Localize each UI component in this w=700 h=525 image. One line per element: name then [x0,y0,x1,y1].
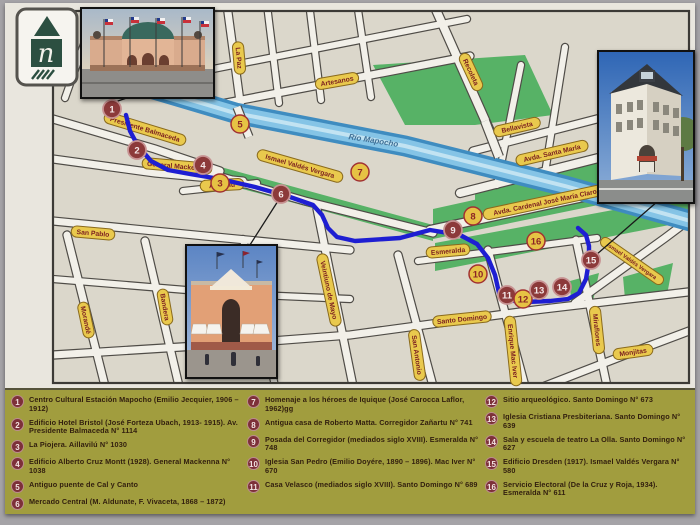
legend-item-text: Iglesia San Pedro (Emilio Doyére, 1890 –… [265,457,485,476]
map-marker-6: 6 [272,185,290,203]
municipality-sign-logo: n [15,7,79,87]
legend-item-number: 14 [485,435,498,448]
legend-item-13: 13Iglesia Cristiana Presbiteriana. Santo… [485,412,691,431]
legend-item-number: 11 [247,480,260,493]
map-marker-8: 8 [464,207,482,225]
legend-item-14: 14Sala y escuela de teatro La Olla. Sant… [485,435,691,454]
legend-column-1: 1Centro Cultural Estación Mapocho (Emili… [11,395,247,510]
marker-number: 15 [586,255,597,266]
legend-item-number: 2 [11,418,24,431]
marker-number: 6 [278,189,283,200]
marker-number: 3 [217,178,222,189]
legend-item-11: 11Casa Velasco (mediados siglo XVIII). S… [247,480,485,493]
legend-item-1: 1Centro Cultural Estación Mapocho (Emili… [11,395,247,414]
marker-number: 8 [470,211,475,222]
legend-item-number: 13 [485,412,498,425]
street-map: Río MapochoPresidente BalmacedaGeneral M… [5,3,695,388]
legend-item-text: Posada del Corregidor (mediados siglo XV… [265,435,485,454]
map-marker-15: 15 [582,251,600,269]
map-poster-photo: { "colors": { "paper": "#e9e6de", "block… [0,0,700,525]
legend-item-text: Edificio Alberto Cruz Montt (1928). Gene… [29,457,247,476]
marker-number: 14 [557,282,568,293]
legend-item-number: 6 [11,497,24,510]
legend-item-text: Centro Cultural Estación Mapocho (Emilio… [29,395,247,414]
legend-item-6: 6Mercado Central (M. Aldunate, F. Vivace… [11,497,247,510]
legend-item-8: 8Antigua casa de Roberto Matta. Corregid… [247,418,485,431]
poster: Río MapochoPresidente BalmacedaGeneral M… [5,3,695,514]
legend-item-number: 16 [485,480,498,493]
legend-item-15: 15Edificio Dresden (1917). Ismael Valdés… [485,457,691,476]
legend-item-5: 5Antiguo puente de Cal y Canto [11,480,247,493]
marker-number: 12 [518,294,529,305]
marker-number: 10 [473,269,484,280]
legend-item-3: 3La Piojera. Aillavilú N° 1030 [11,440,247,453]
legend-item-7: 7Homenaje a los héroes de Iquique (José … [247,395,485,414]
legend-item-number: 7 [247,395,260,408]
legend-column-2: 7Homenaje a los héroes de Iquique (José … [247,395,485,510]
marker-number: 9 [450,225,455,236]
legend-item-number: 8 [247,418,260,431]
map-marker-10: 10 [469,265,487,283]
legend-item-text: Iglesia Cristiana Presbiteriana. Santo D… [503,412,691,431]
marker-number: 13 [534,285,545,296]
legend-item-text: Mercado Central (M. Aldunate, F. Vivacet… [29,497,226,507]
map-marker-1: 1 [103,100,121,118]
legend-item-number: 9 [247,435,260,448]
map-marker-5: 5 [231,115,249,133]
legend-item-number: 12 [485,395,498,408]
legend-item-text: Sitio arqueológico. Santo Domingo N° 673 [503,395,653,405]
legend-item-number: 4 [11,457,24,470]
legend-item-10: 10Iglesia San Pedro (Emilio Doyére, 1890… [247,457,485,476]
logo-letter: n [38,39,55,69]
legend-item-text: Edificio Hotel Bristol (José Forteza Uba… [29,418,247,437]
legend-item-text: Homenaje a los héroes de Iquique (José C… [265,395,485,414]
legend-item-text: Casa Velasco (mediados siglo XVIII). San… [265,480,478,490]
map-marker-9: 9 [444,221,462,239]
estacion-mapocho-art [82,9,213,97]
legend-column-3: 12Sitio arqueológico. Santo Domingo N° 6… [485,395,691,510]
legend-item-9: 9Posada del Corregidor (mediados siglo X… [247,435,485,454]
legend-item-text: Antigua casa de Roberto Matta. Corregido… [265,418,473,428]
map-marker-14: 14 [553,278,571,296]
map-marker-12: 12 [514,290,532,308]
estacion-mapocho-photo [80,7,215,99]
legend-item-text: La Piojera. Aillavilú N° 1030 [29,440,127,450]
legend-item-number: 15 [485,457,498,470]
marker-number: 11 [502,290,513,301]
legend-item-text: Antiguo puente de Cal y Canto [29,480,138,490]
legend-item-text: Edificio Dresden (1917). Ismael Valdés V… [503,457,691,476]
map-marker-11: 11 [498,286,516,304]
legend-item-number: 10 [247,457,260,470]
legend: 1Centro Cultural Estación Mapocho (Emili… [5,388,695,514]
legend-item-12: 12Sitio arqueológico. Santo Domingo N° 6… [485,395,691,408]
legend-item-4: 4Edificio Alberto Cruz Montt (1928). Gen… [11,457,247,476]
map-marker-4: 4 [194,156,212,174]
edificio-dresden-photo [597,50,695,204]
map-marker-13: 13 [530,281,548,299]
marker-number: 7 [357,167,362,178]
legend-item-2: 2Edificio Hotel Bristol (José Forteza Ub… [11,418,247,437]
mercado-central-art [187,246,276,377]
legend-item-text: Sala y escuela de teatro La Olla. Santo … [503,435,691,454]
legend-item-number: 3 [11,440,24,453]
logo-art: n [15,7,79,87]
marker-number: 1 [109,104,115,115]
legend-item-number: 5 [11,480,24,493]
map-marker-16: 16 [527,232,545,250]
edificio-dresden-art [599,52,693,202]
street-label: La Paz [232,41,246,74]
map-marker-2: 2 [128,141,146,159]
mercado-central-photo [185,244,278,379]
marker-number: 2 [134,145,139,156]
map-marker-3: 3 [211,174,229,192]
marker-number: 16 [531,236,542,247]
legend-item-16: 16Servicio Electoral (De la Cruz y Roja,… [485,480,691,499]
legend-item-text: Servicio Electoral (De la Cruz y Roja, 1… [503,480,691,499]
marker-number: 4 [200,160,206,171]
legend-item-number: 1 [11,395,24,408]
marker-number: 5 [237,119,243,130]
map-marker-7: 7 [351,163,369,181]
